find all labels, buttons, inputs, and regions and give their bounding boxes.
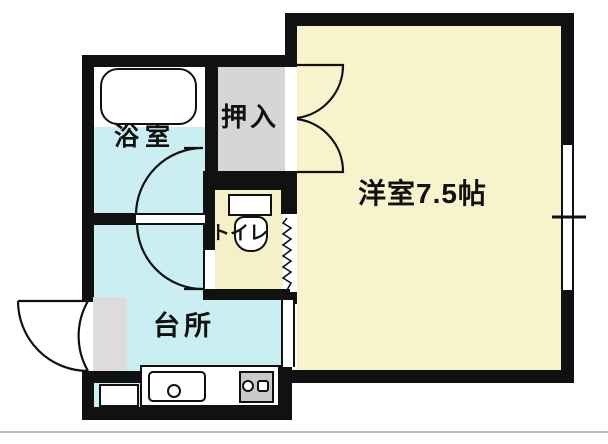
wall <box>82 213 138 225</box>
toilet-door-opening <box>203 250 215 289</box>
bathroom-label: 浴室 <box>114 125 176 150</box>
entry-door-symbol <box>18 301 88 371</box>
wall <box>205 55 218 190</box>
wall <box>290 13 574 26</box>
wall <box>561 13 574 145</box>
wall-hatch-zigzag <box>283 218 291 290</box>
entry-step <box>93 297 127 371</box>
western-room-label: 洋室7.5帖 <box>358 180 487 208</box>
closet-door-gap <box>285 65 297 172</box>
kitchen-label: 台所 <box>153 313 215 340</box>
stove-burner-right <box>257 380 269 392</box>
sink-drain <box>167 384 181 398</box>
floorplan: 浴室 押入 洋室7.5帖 トイレ 台所 <box>0 0 608 444</box>
wall <box>82 55 94 302</box>
toilet-label: トイレ <box>211 224 268 243</box>
wall <box>82 407 292 420</box>
wall <box>203 289 290 300</box>
wall <box>94 371 140 383</box>
wall <box>285 13 297 65</box>
bathtub <box>100 68 197 125</box>
image-baseline <box>0 431 608 433</box>
wall <box>278 365 292 420</box>
washer-pan <box>99 384 139 407</box>
wall <box>287 370 574 383</box>
bathroom-door-opening <box>136 213 205 225</box>
wall <box>82 55 297 67</box>
wall <box>281 172 297 214</box>
window <box>561 145 574 290</box>
stove-burner-left <box>242 380 254 392</box>
toilet-tank <box>228 194 272 216</box>
entry-door-arc <box>18 301 88 371</box>
closet-label: 押入 <box>221 104 279 130</box>
kitchen-room-opening <box>281 300 295 367</box>
